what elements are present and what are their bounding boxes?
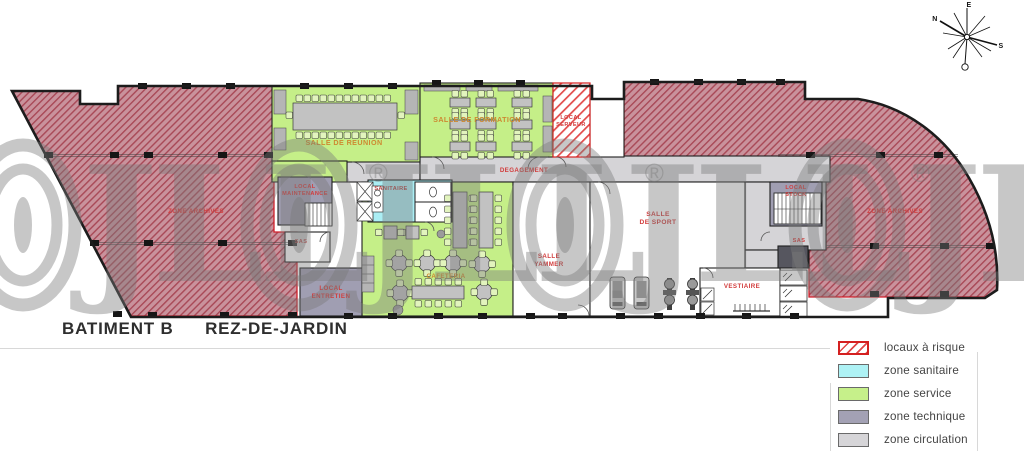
label-zone-archives-left: ZONE ARCHIVES (168, 208, 224, 215)
label-local-maintenance-2: MAINTENANCE (282, 191, 328, 197)
plan-title: BATIMENT B REZ-DE-JARDIN (62, 319, 348, 339)
legend-label: locaux à risque (884, 341, 965, 354)
legend-frame-right (977, 352, 978, 451)
zone-archives-left (12, 86, 297, 316)
label-cafeteria: CAFETERIA (426, 273, 465, 280)
label-sas-left: SAS (295, 239, 308, 245)
room-sas-left (285, 232, 330, 262)
conference-table (293, 103, 397, 130)
legend-item-zone-sanitaire: zone sanitaire (838, 363, 968, 378)
label-salle-de-formation: SALLE DE FORMATION (433, 115, 521, 124)
legend-swatch-zone-technique (838, 410, 869, 424)
compass-east: E (966, 2, 971, 9)
stairs-local-maintenance (305, 203, 332, 226)
label-local-serveur-1: LOCAL (560, 115, 581, 121)
room-sas-right (778, 246, 808, 268)
legend-frame-left (830, 383, 831, 451)
label-local-stock-2: STOCK (785, 192, 806, 198)
label-salle-yammer-1: SALLE (538, 253, 560, 260)
label-local-serveur-2: SERVEUR (556, 122, 586, 128)
legend-swatch-locaux-a-risque (838, 341, 869, 355)
legend-swatch-zone-circulation (838, 433, 869, 447)
legend-item-zone-technique: zone technique (838, 409, 968, 424)
compass-north: N (932, 16, 937, 23)
sheet-divider-line (0, 348, 830, 349)
label-local-stock-1: LOCAL (785, 185, 806, 191)
compass-south: S (998, 43, 1003, 50)
compass-rose: E N S (932, 2, 1003, 70)
label-salle-de-reunion: SALLE DE REUNION (305, 138, 382, 147)
label-local-entretien-1: LOCAL (319, 285, 342, 292)
building-name: BATIMENT B (62, 319, 174, 338)
room-salle-yammer (513, 182, 590, 316)
label-degagement: DEGAGEMENT (500, 167, 548, 174)
label-sas-right: SAS (793, 238, 806, 244)
legend-item-zone-service: zone service (838, 386, 968, 401)
label-local-entretien-2: ENTRETIEN (312, 293, 351, 300)
floor-plan-page: ZONE ARCHIVES ZONE ARCHIVES SALLE DE REU… (0, 0, 1024, 451)
legend-label: zone technique (884, 410, 965, 423)
room-annex (590, 99, 624, 157)
label-salle-yammer-2: YAMMER (534, 261, 563, 268)
legend: locaux à risque zone sanitaire zone serv… (838, 340, 968, 451)
label-sanitaire: SANITAIRE (374, 186, 407, 192)
floor-level-name: REZ-DE-JARDIN (205, 319, 348, 338)
label-salle-de-sport-1: SALLE (646, 211, 670, 218)
legend-label: zone sanitaire (884, 364, 959, 377)
legend-swatch-zone-service (838, 387, 869, 401)
label-local-maintenance-1: LOCAL (294, 184, 315, 190)
label-salle-de-sport-2: DE SPORT (640, 219, 677, 226)
legend-swatch-zone-sanitaire (838, 364, 869, 378)
legend-label: zone service (884, 387, 952, 400)
label-zone-archives-right: ZONE ARCHIVES (867, 208, 923, 215)
legend-item-locaux-a-risque: locaux à risque (838, 340, 968, 355)
legend-item-zone-circulation: zone circulation (838, 432, 968, 447)
room-local-entretien (300, 268, 362, 316)
legend-label: zone circulation (884, 433, 968, 446)
label-vestiaire: VESTIAIRE (724, 283, 760, 290)
